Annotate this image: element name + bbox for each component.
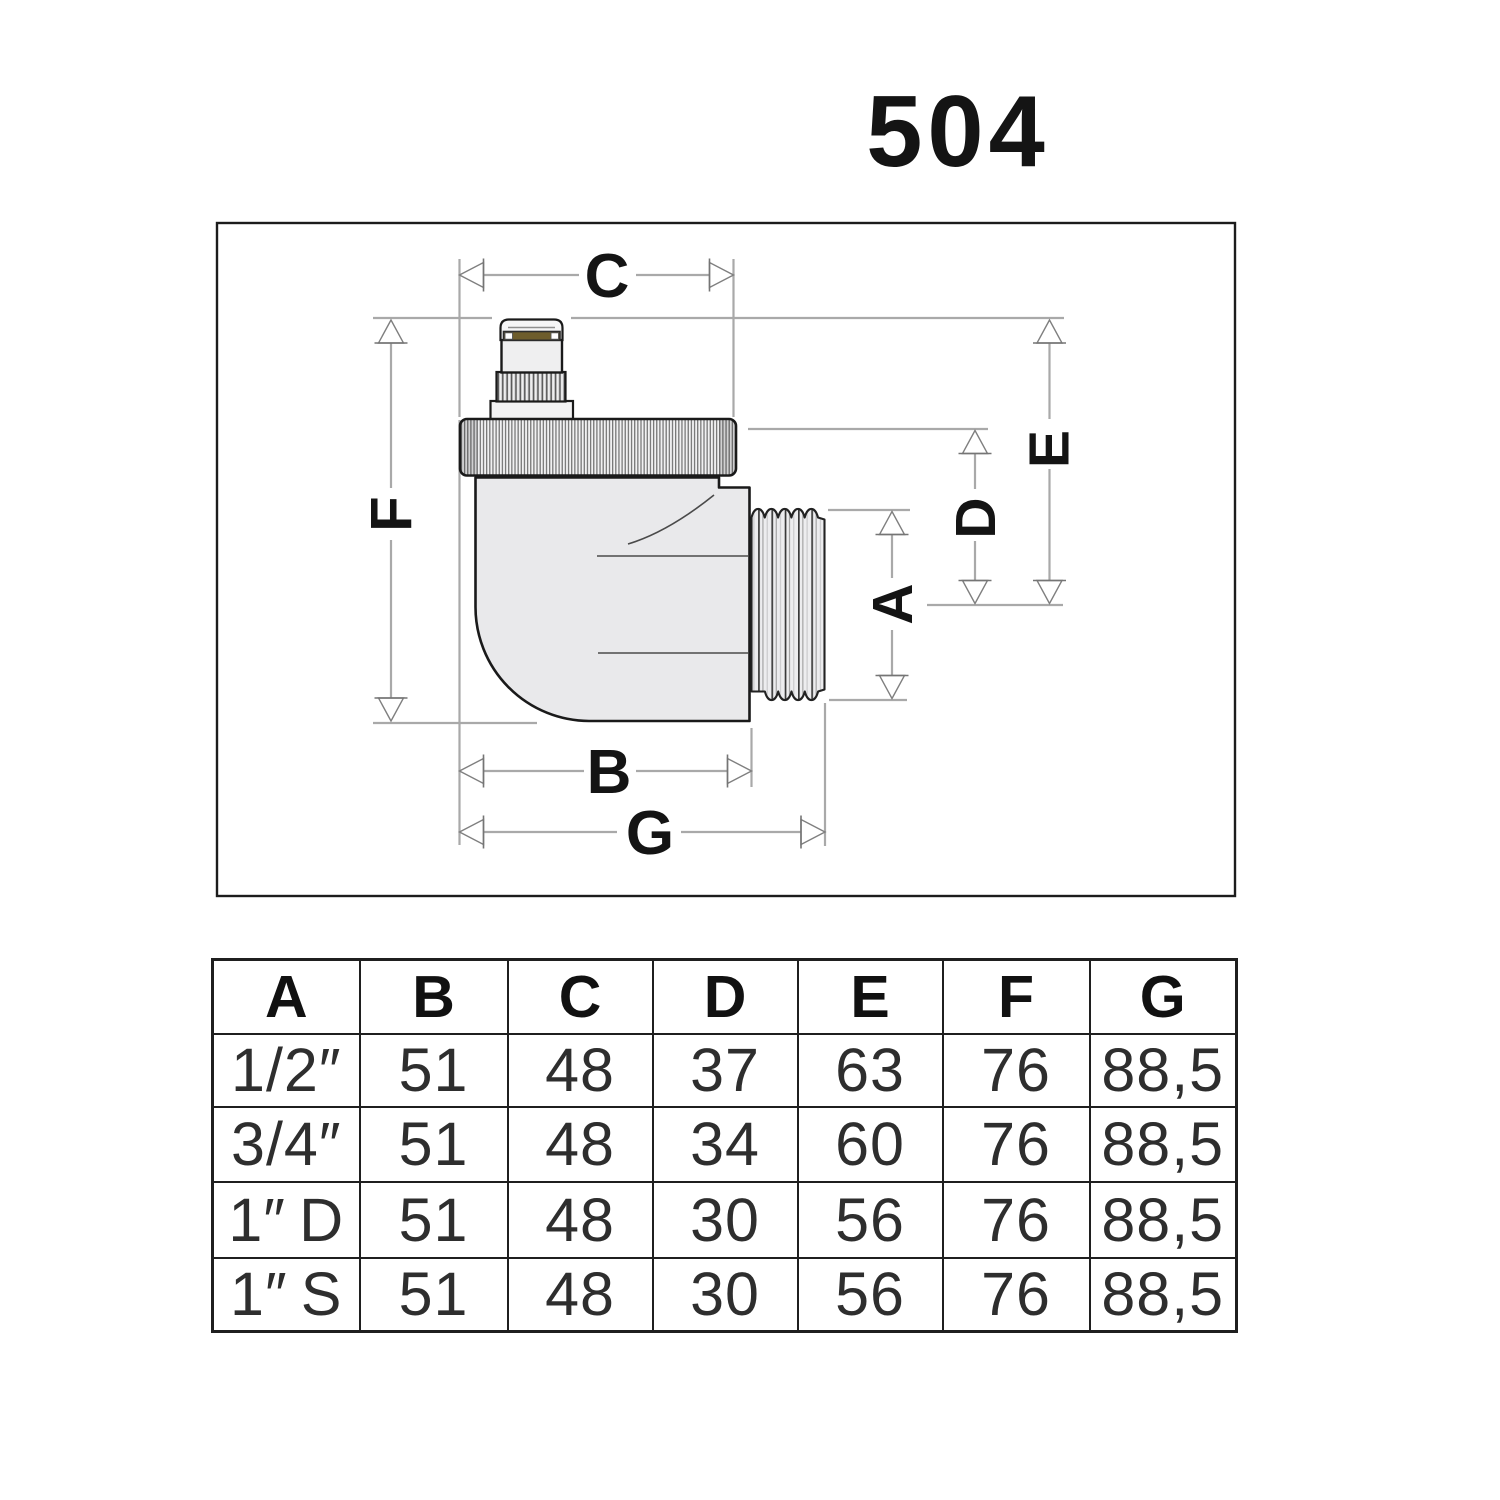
svg-text:A: A bbox=[861, 583, 925, 624]
svg-text:F: F bbox=[360, 496, 425, 531]
svg-text:E: E bbox=[1018, 430, 1082, 468]
svg-text:G: G bbox=[626, 799, 674, 868]
svg-text:C: C bbox=[585, 242, 630, 311]
svg-text:504: 504 bbox=[866, 76, 1050, 188]
svg-text:B: B bbox=[587, 738, 632, 807]
svg-text:D: D bbox=[944, 497, 1008, 538]
